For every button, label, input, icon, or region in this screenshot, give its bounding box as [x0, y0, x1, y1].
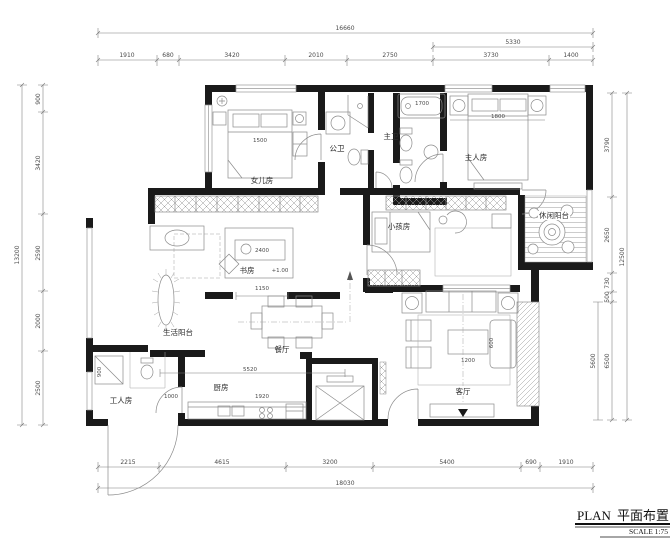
dim-left-seg-3: 2590: [35, 245, 42, 260]
dim-bot-seg-2: 4615: [214, 459, 229, 466]
dim-kitchen-span: 5520: [243, 367, 257, 373]
dim-hall: 1000: [164, 394, 178, 400]
room-dining: 餐厅: [238, 271, 353, 354]
dim-right-seg-1: 3790: [604, 137, 611, 152]
tv-icon: [458, 409, 468, 417]
dim-coffee-table-d: 600: [489, 337, 495, 348]
dim-top-sub: 5330: [505, 39, 520, 46]
dim-bot-seg-6: 1910: [558, 459, 573, 466]
dim-top-seg-7: 1400: [563, 52, 578, 59]
label-master-room: 主人房: [465, 152, 488, 162]
dim-kitchen-counter: 1920: [255, 394, 269, 400]
dim-right-total: 12500: [619, 247, 626, 266]
dim-bot-seg-3: 3200: [322, 459, 337, 466]
dim-left-total: 13200: [14, 245, 21, 264]
floor-plan-drawing: 16660 5330 1910 680 3420 2010 2750 3730 …: [0, 0, 670, 541]
label-kitchen: 厨房: [214, 382, 229, 392]
label-guest-bath: 公卫: [330, 144, 345, 153]
label-living-room: 客厅: [456, 386, 471, 396]
dim-study-opening: 1150: [255, 286, 269, 292]
room-daughter: 1500 女儿房: [213, 96, 321, 185]
room-study: 2400 书房 +1.00 1150: [174, 228, 293, 300]
dim-right-seg-4: 500: [604, 291, 611, 303]
dim-bot-seg-4: 5400: [439, 459, 454, 466]
dimension-lines-left: 900 3420 2590 2000 2500 13200: [14, 83, 48, 427]
dim-top-seg-2: 680: [162, 52, 174, 59]
room-guest-bath: 公卫: [326, 95, 392, 188]
dim-right-sub: 5600: [590, 353, 597, 368]
dimension-lines-bottom: 2215 4615 3200 5400 690 1910 18030: [96, 459, 595, 493]
dim-left-seg-1: 900: [35, 93, 42, 105]
dimension-lines-right: 3790 2650 730 500 6500 5600 12500: [590, 91, 632, 422]
title-plan-en: PLAN: [577, 508, 612, 523]
dim-top-seg-5: 2750: [382, 52, 397, 59]
dim-top-seg-1: 1910: [119, 52, 134, 59]
bay-window: [517, 302, 539, 406]
title-plan-cn: 平面布置图: [617, 508, 670, 523]
label-maid-room: 工人房: [110, 395, 133, 405]
dim-master-bed: 1800: [491, 114, 505, 120]
dimension-lines-top: 16660 5330 1910 680 3420 2010 2750 3730 …: [96, 25, 595, 66]
dim-daughter-bed: 1500: [253, 138, 267, 144]
up-arrow: [347, 271, 353, 280]
room-service-balcony: 生活阳台: [150, 226, 204, 337]
dim-top-seg-4: 2010: [308, 52, 323, 59]
elevator: [316, 376, 364, 420]
floor-plan-page: 16660 5330 1910 680 3420 2010 2750 3730 …: [0, 0, 670, 541]
label-dining: 餐厅: [275, 345, 290, 354]
dim-right-seg-3: 730: [604, 277, 611, 289]
dim-study-level: +1.00: [272, 268, 289, 274]
dim-bot-seg-1: 2215: [120, 459, 135, 466]
title-scale: SCALE 1:75: [629, 527, 668, 536]
label-study: 书房: [240, 265, 255, 275]
title-block: PLAN 平面布置图 SCALE 1:75: [575, 508, 670, 537]
room-kids: 小孩房: [367, 211, 511, 276]
label-service-balcony: 生活阳台: [163, 327, 193, 337]
dim-desk: 2400: [255, 248, 269, 254]
room-living: 1200 600 客厅: [388, 291, 518, 419]
label-kids-room: 小孩房: [388, 221, 411, 231]
dim-left-seg-4: 2000: [35, 313, 42, 328]
dim-top-seg-6: 3730: [483, 52, 498, 59]
dim-bath-tub: 1700: [415, 101, 429, 107]
label-leisure-balcony: 休闲阳台: [539, 210, 569, 220]
dim-bot-seg-5: 690: [525, 459, 537, 466]
room-master-bath: 1700 主卫: [384, 94, 446, 183]
label-master-bath: 主卫: [384, 131, 399, 141]
dim-right-seg-5: 6500: [604, 353, 611, 368]
label-daughter-room: 女儿房: [251, 175, 274, 185]
dim-right-seg-2: 2650: [604, 227, 611, 242]
dim-left-seg-5: 2500: [35, 380, 42, 395]
dim-top-seg-3: 3420: [224, 52, 239, 59]
dim-bottom-total: 18030: [335, 480, 354, 487]
dim-left-seg-2: 3420: [35, 155, 42, 170]
dim-top-total: 16660: [335, 25, 354, 32]
room-leisure-balcony: 休闲阳台: [525, 196, 586, 262]
dim-maid-closet: 900: [97, 366, 103, 377]
